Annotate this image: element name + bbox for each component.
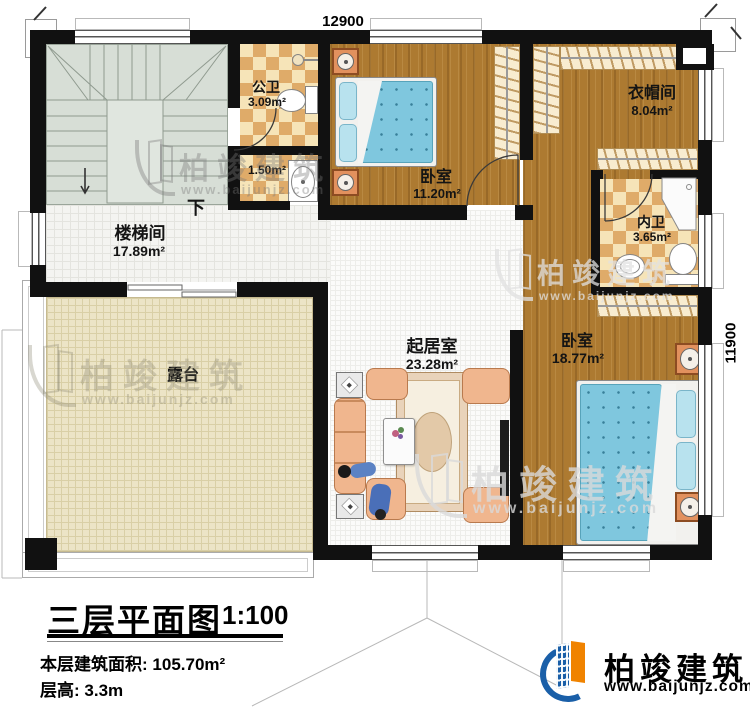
brand-logo-icon — [540, 640, 598, 702]
title-underline — [47, 634, 283, 638]
stair-treads — [46, 44, 228, 203]
room-area-public-bath: 3.09m² — [248, 96, 286, 109]
floor-area-value: 105.70m² — [152, 655, 225, 674]
door-arc-public-bath — [234, 108, 276, 150]
room-label-cloakroom: 衣帽间 — [628, 86, 676, 103]
room-area-bedroom2: 18.77m² — [552, 351, 604, 366]
room-label-public-bath: 公卫 — [252, 80, 280, 95]
dimension-top: 12900 — [322, 13, 364, 30]
logo-tower-orange — [571, 641, 585, 683]
room-label-stairwell: 楼梯间 — [115, 225, 166, 243]
dimension-right: 11900 — [723, 323, 740, 364]
room-label-ensuite-bath: 内卫 — [637, 215, 665, 230]
floor-area-line: 本层建筑面积: 105.70m² — [40, 650, 225, 675]
room-area-stairwell: 17.89m² — [113, 244, 165, 259]
stair-down-label: 下 — [187, 199, 205, 218]
shower-icon — [662, 178, 696, 230]
brand-website: www.baijunjz.com — [604, 678, 750, 696]
dimension-ticks — [34, 4, 741, 39]
floor-height-line: 层高: 3.3m — [40, 676, 123, 701]
door-arc-bedroom1 — [467, 155, 518, 206]
title-underline-thin — [47, 641, 283, 642]
room-label-terrace: 露台 — [167, 368, 199, 385]
drawing-scale: 1:100 — [222, 600, 289, 631]
room-area-living-room: 23.28m² — [406, 357, 458, 372]
room-area-cloakroom: 8.04m² — [631, 104, 672, 118]
room-label-bedroom1: 卧室 — [420, 170, 452, 187]
room-label-bedroom2: 卧室 — [561, 334, 593, 351]
brand-logo: 柏竣建筑 www.baijunjz.com — [540, 640, 745, 702]
room-area-small-bath: 1.50m² — [248, 164, 286, 177]
door-arcs — [234, 108, 652, 221]
floor-plan-page: 公卫 3.09m² 1.50m² 卧室 11.20m² 衣帽间 8.04m² 内… — [0, 0, 750, 707]
floor-area-label: 本层建筑面积: — [40, 655, 148, 674]
logo-tower-blue — [556, 643, 569, 688]
room-area-ensuite-bath: 3.65m² — [633, 231, 671, 244]
stair-direction-arrow — [81, 168, 89, 193]
floor-height-value: 3.3m — [84, 681, 123, 700]
sliding-door-terrace — [128, 285, 236, 297]
room-label-living-room: 起居室 — [407, 338, 458, 356]
room-area-bedroom1: 11.20m² — [413, 187, 461, 201]
floor-height-label: 层高: — [40, 681, 80, 700]
